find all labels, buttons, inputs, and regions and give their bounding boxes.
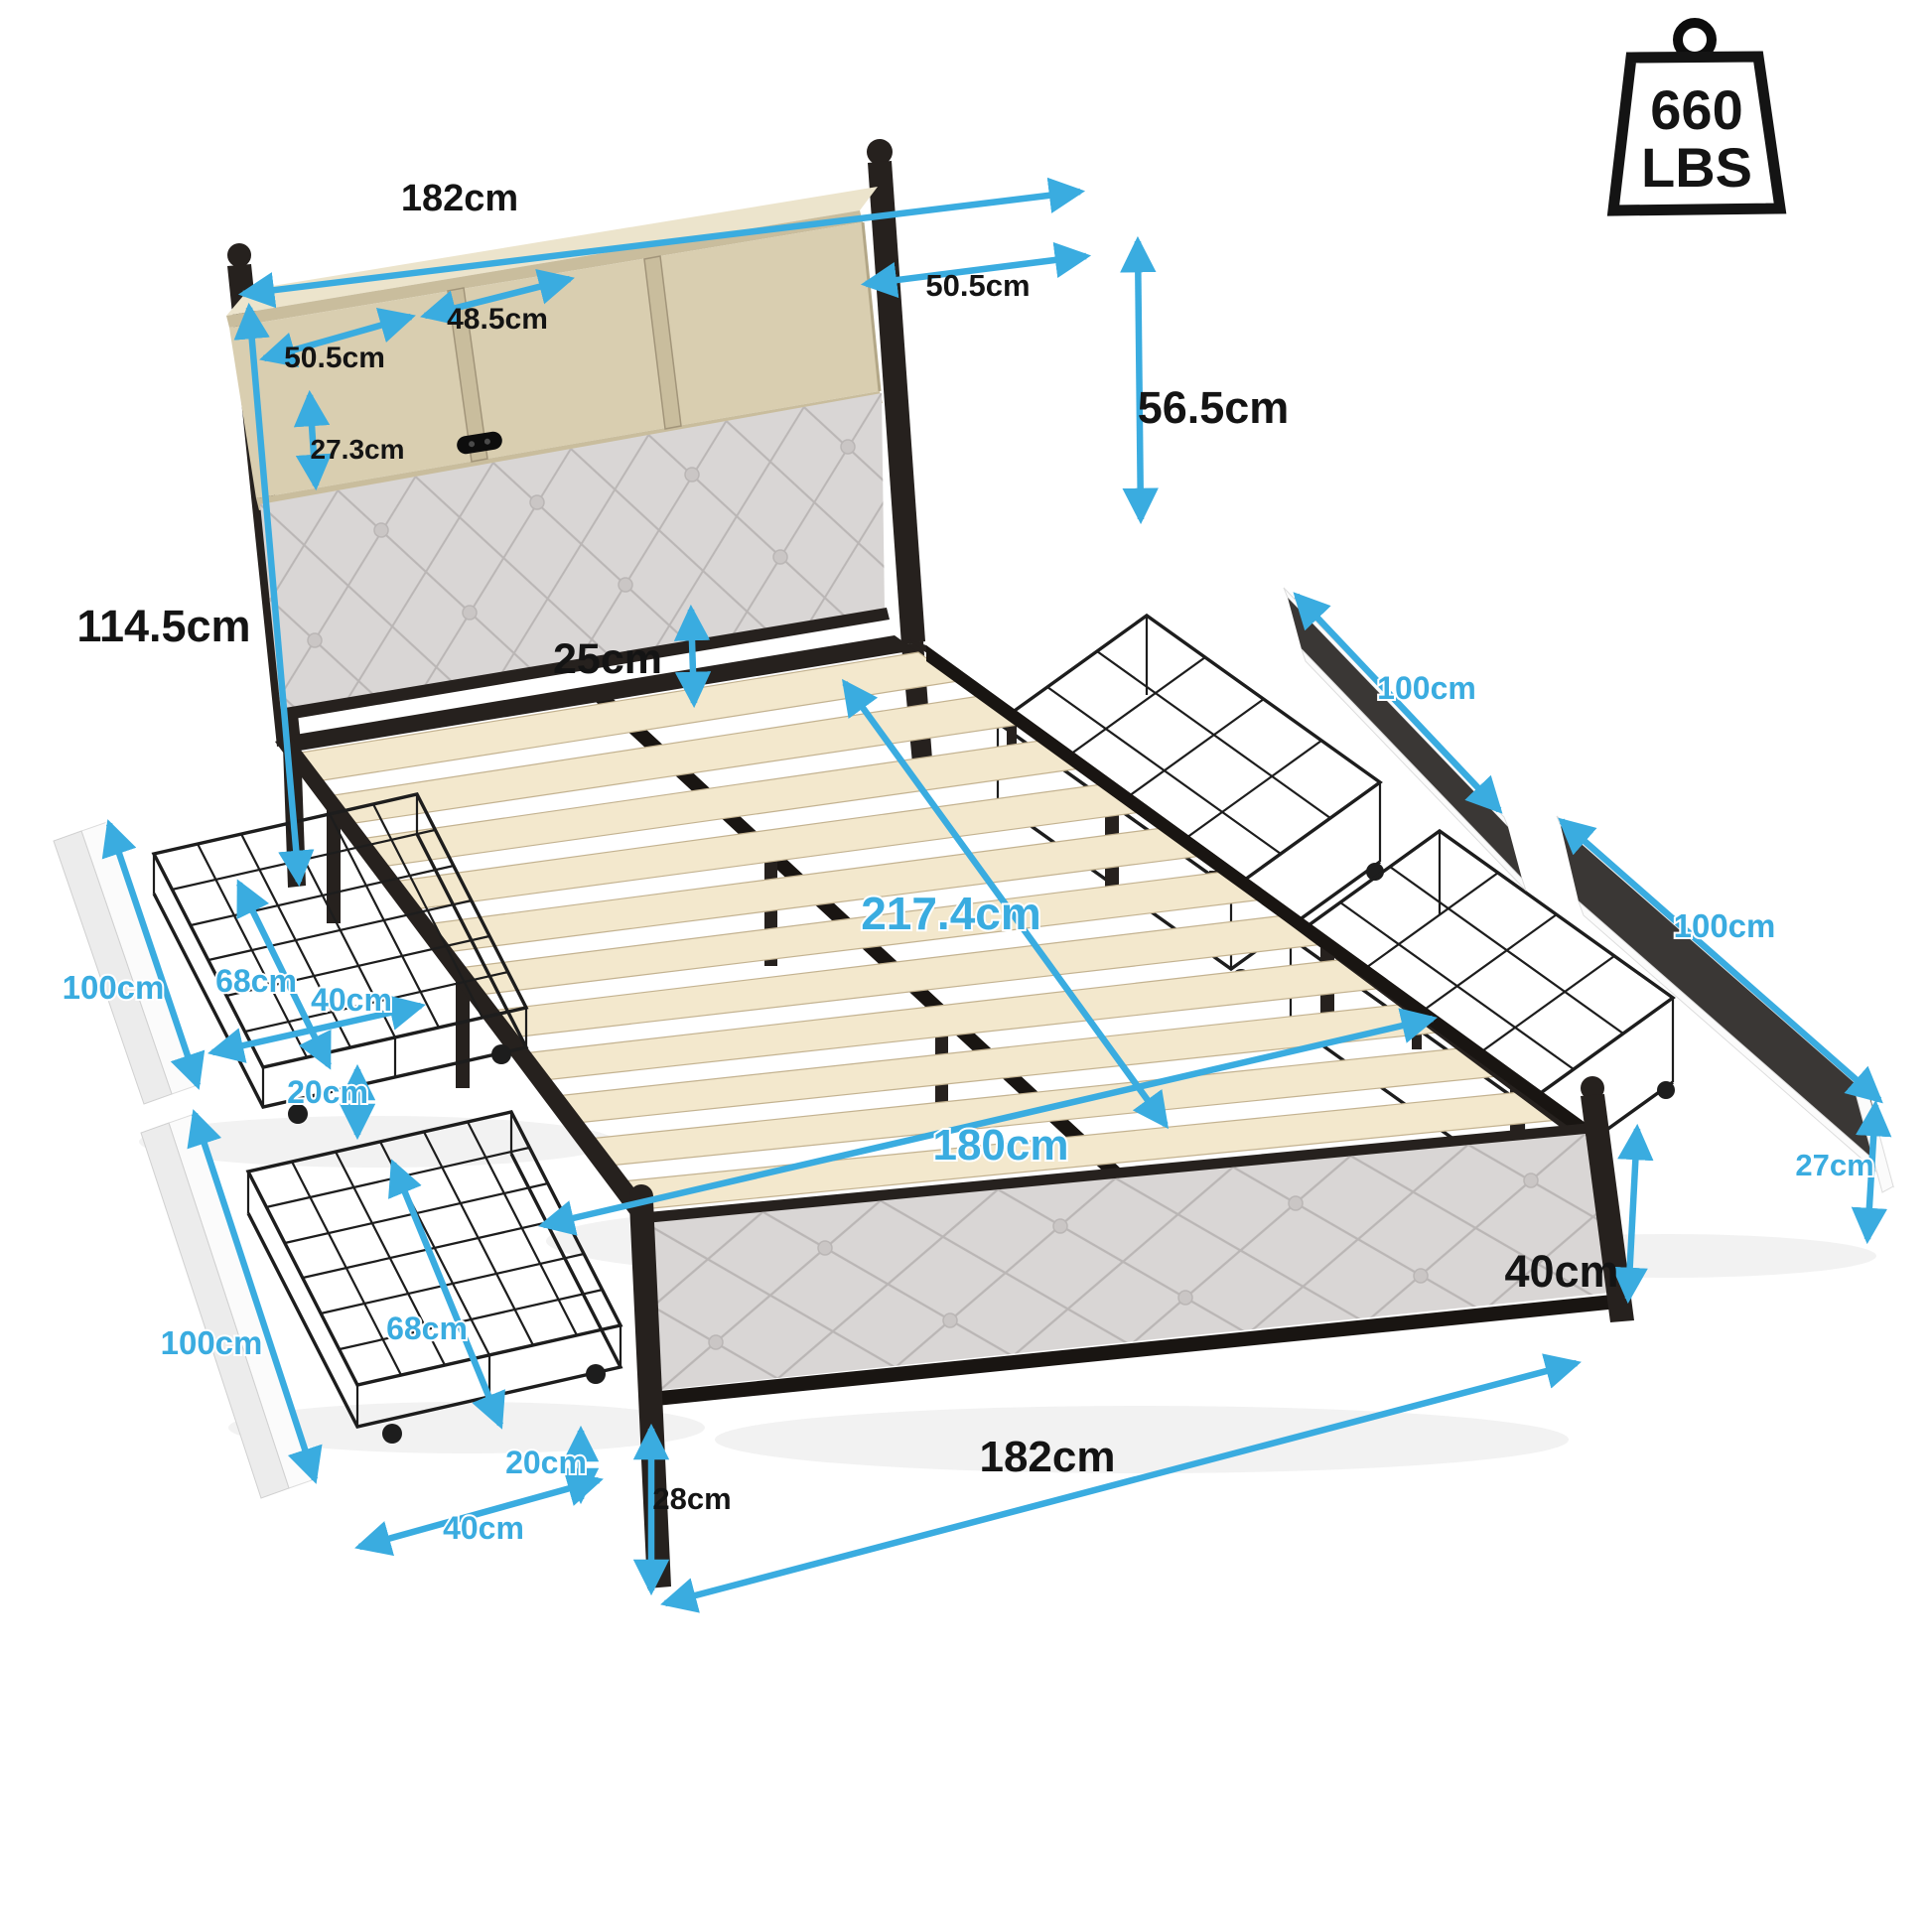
- label-left-drawer2-length: 100cm: [161, 1324, 263, 1361]
- label-right-drawer2: 100cm: [1674, 907, 1776, 944]
- label-left-drawer1-width: 40cm: [311, 982, 392, 1018]
- diagram-canvas: 182cm 50.5cm 48.5cm 50.5cm 27.3cm 56.5cm…: [0, 0, 1932, 1932]
- label-left-drawer2-width: 40cm: [443, 1510, 524, 1546]
- label-shelf-middle: 48.5cm: [447, 303, 548, 336]
- label-headboard-upper-height: 56.5cm: [1138, 382, 1290, 433]
- label-shelf-left: 50.5cm: [284, 342, 385, 374]
- arrow-headboard-upper-height: [1138, 241, 1141, 519]
- label-right-drawer1: 100cm: [1377, 670, 1476, 706]
- label-footboard-height: 40cm: [1504, 1246, 1618, 1297]
- label-base-width: 182cm: [979, 1433, 1115, 1481]
- weight-handle-ring: [1678, 23, 1712, 57]
- weight-capacity-icon: 660 LBS: [1613, 23, 1780, 210]
- arrow-clearance: [691, 610, 694, 703]
- bed-dimension-diagram: 182cm 50.5cm 48.5cm 50.5cm 27.3cm 56.5cm…: [0, 0, 1932, 1932]
- label-left-drawer2-height: 20cm: [505, 1445, 587, 1480]
- label-left-drawer1-height: 20cm: [287, 1074, 368, 1110]
- label-shelf-depth: 27.3cm: [311, 434, 405, 465]
- arrow-base-width: [665, 1363, 1577, 1603]
- weight-unit: LBS: [1641, 136, 1752, 199]
- label-panel-height: 27cm: [1795, 1148, 1873, 1182]
- label-clearance: 25cm: [553, 635, 662, 683]
- label-shelf-right: 50.5cm: [925, 268, 1030, 303]
- weight-value: 660: [1650, 78, 1742, 141]
- label-headboard-width: 182cm: [401, 178, 518, 219]
- left-drawer-panel-2: [141, 1114, 315, 1498]
- label-headboard-total-height: 114.5cm: [76, 601, 250, 651]
- label-slat-width: 180cm: [932, 1121, 1068, 1170]
- label-left-drawer1-depth: 68cm: [215, 963, 297, 999]
- label-left-drawer2-depth: 68cm: [386, 1311, 468, 1346]
- label-total-length: 217.4cm: [861, 888, 1041, 939]
- label-leg-height: 28cm: [652, 1481, 731, 1516]
- label-left-drawer1-length: 100cm: [63, 969, 165, 1006]
